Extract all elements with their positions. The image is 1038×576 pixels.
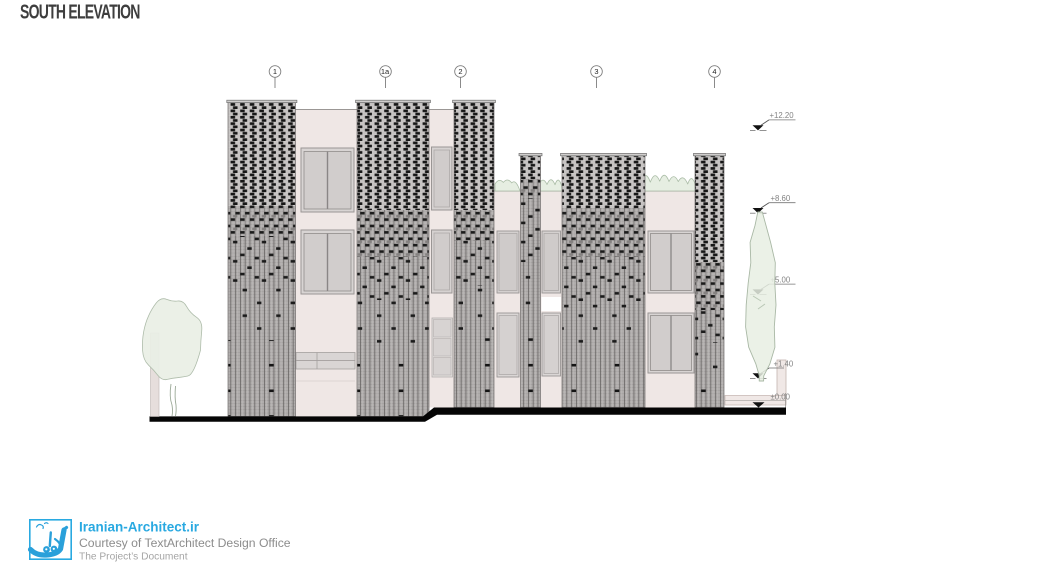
svg-text:2: 2 <box>458 67 462 76</box>
svg-text:3: 3 <box>594 67 598 76</box>
svg-text:1: 1 <box>273 67 277 76</box>
svg-text:+1.40: +1.40 <box>774 359 794 368</box>
svg-text:The Project’s Document: The Project’s Document <box>79 552 188 563</box>
svg-text:+12.20: +12.20 <box>770 111 795 120</box>
svg-text:4: 4 <box>712 67 716 76</box>
svg-text:Iranian-Architect.ir: Iranian-Architect.ir <box>79 520 200 535</box>
svg-text:SOUTH ELEVATION: SOUTH ELEVATION <box>20 0 140 23</box>
svg-text:+8.60: +8.60 <box>771 194 791 203</box>
svg-text:1a: 1a <box>381 67 390 76</box>
svg-text:Courtesy of TextArchitect Desi: Courtesy of TextArchitect Design Office <box>79 536 291 550</box>
svg-text:±0.00: ±0.00 <box>771 393 791 402</box>
